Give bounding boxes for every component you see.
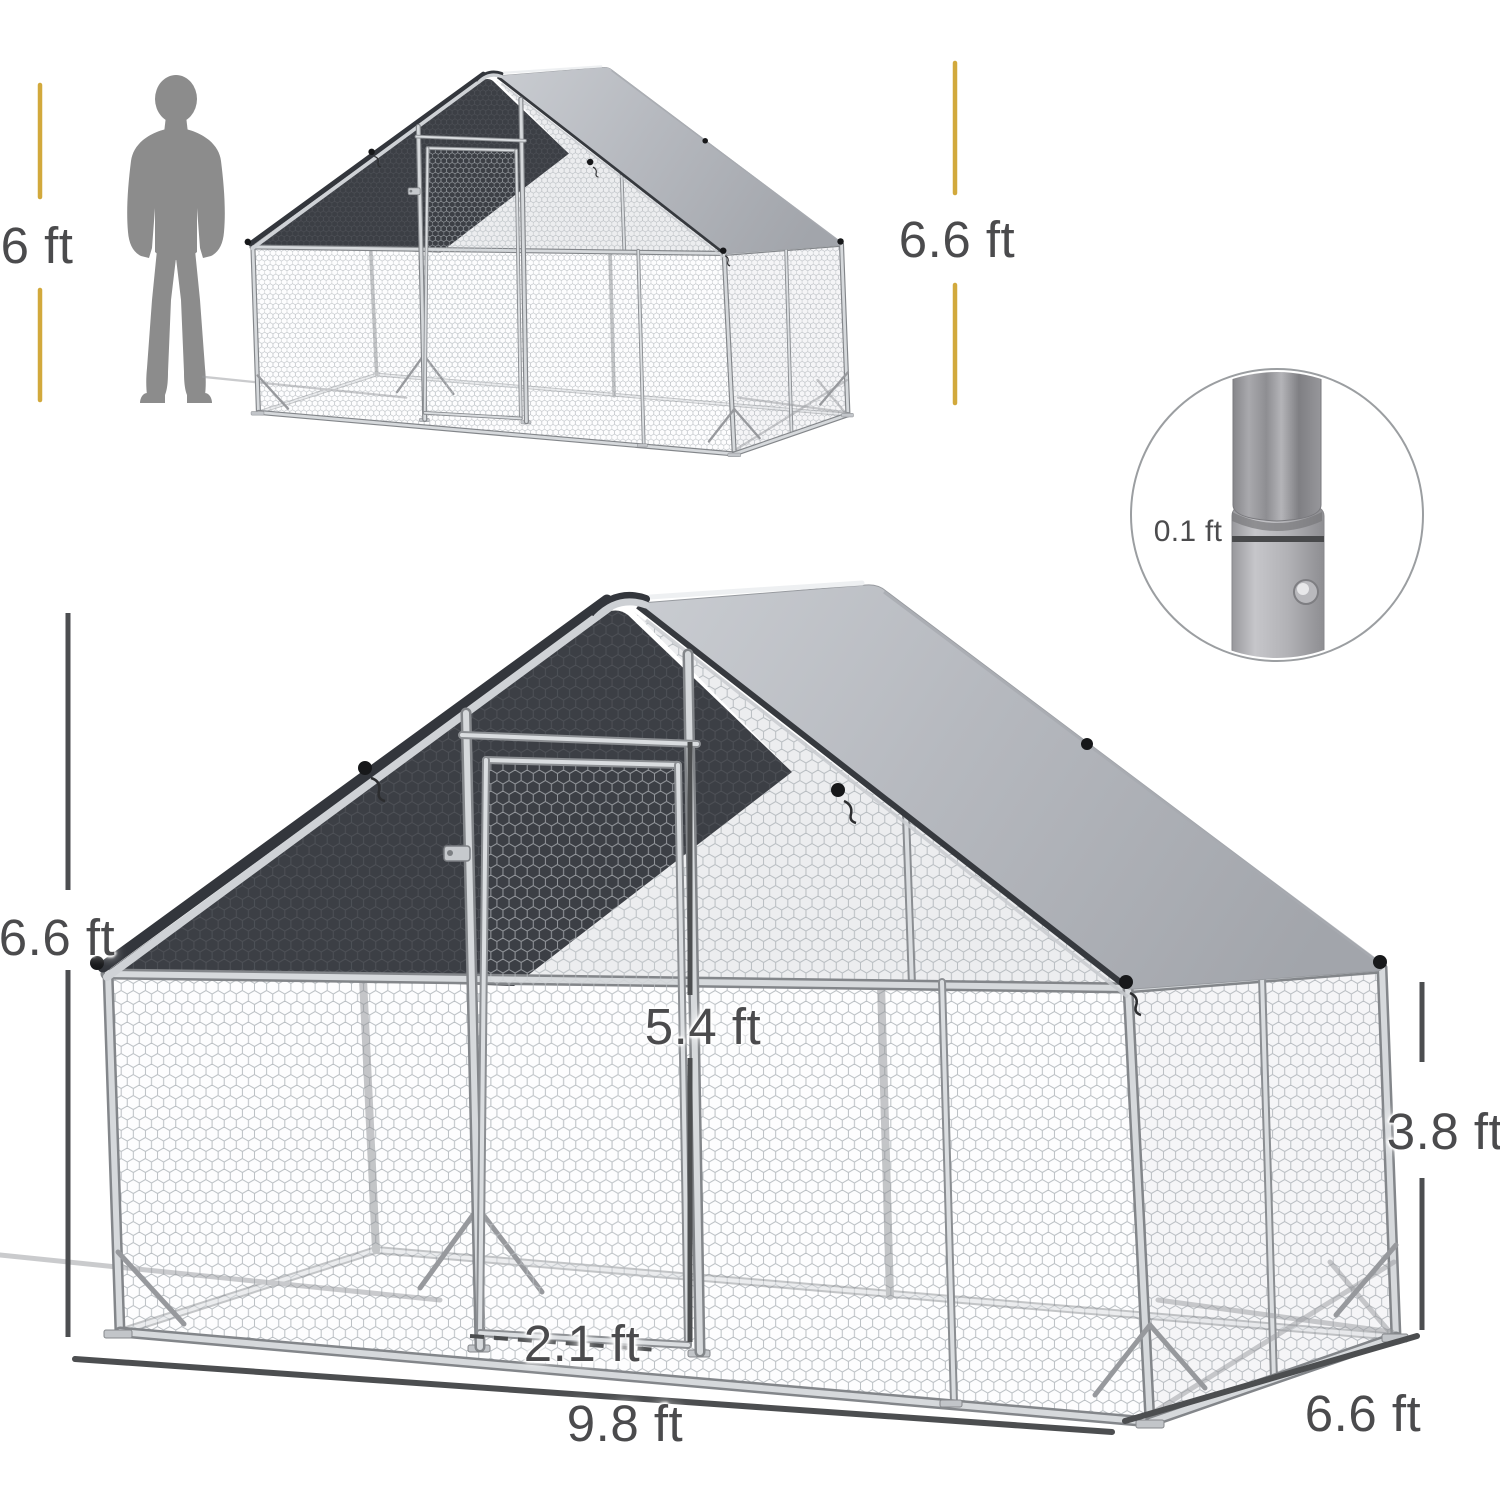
coop-depth-label: 6.6 ft [1305, 1388, 1421, 1439]
ridge-height-label: 6.6 ft [0, 912, 115, 963]
coop-width-label: 9.8 ft [567, 1398, 683, 1449]
wall-height-label: 3.8 ft [1387, 1106, 1500, 1157]
door-height-label: 5.4 ft [645, 1001, 761, 1052]
door-width-label: 2.1 ft [524, 1318, 640, 1369]
human-silhouette [127, 75, 225, 403]
small-coop-height-label: 6.6 ft [899, 214, 1015, 265]
pole-detail-callout [1131, 360, 1423, 668]
human-height-label: 6 ft [1, 220, 74, 271]
pole-tube [1233, 360, 1321, 521]
product-dimension-diagram: 6 ft 6.6 ft 0.1 ft 6.6 ft 5.4 ft 2.1 ft … [0, 0, 1500, 1500]
small-coop-preview [203, 66, 853, 456]
pole-diameter-label: 0.1 ft [1154, 517, 1223, 547]
diameter-marker-line [1232, 536, 1324, 542]
diagram-artwork [0, 0, 1500, 1500]
